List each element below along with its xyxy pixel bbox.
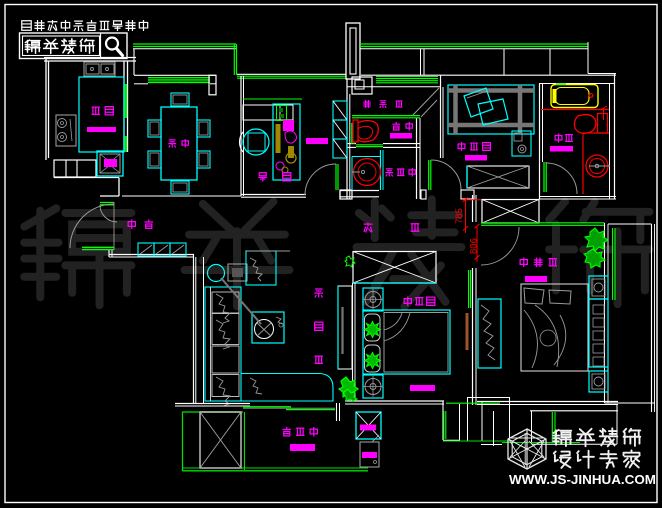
svg-text:806: 806 <box>469 238 480 254</box>
svg-text:WWW.JS-JINHUA.COM: WWW.JS-JINHUA.COM <box>509 472 656 487</box>
svg-text:785: 785 <box>454 208 465 224</box>
